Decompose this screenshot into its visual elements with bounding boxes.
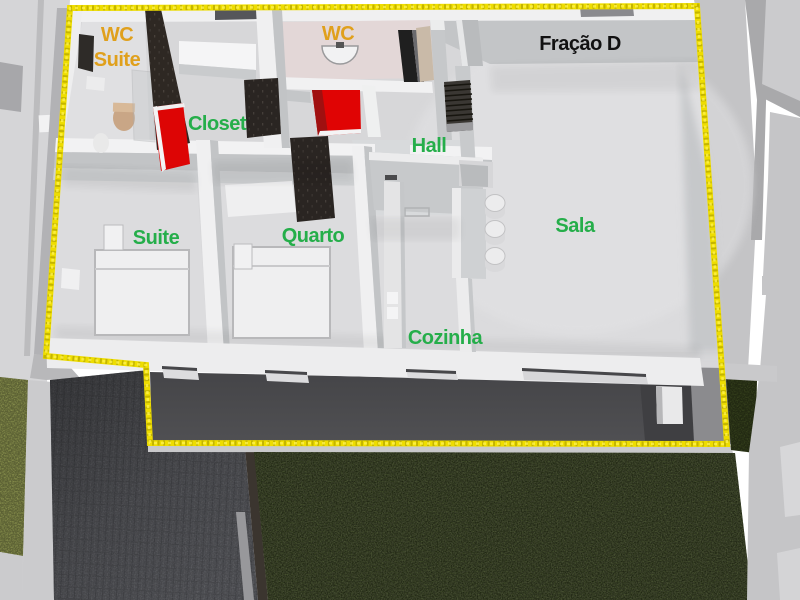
svg-text:Closet: Closet <box>188 113 247 135</box>
svg-text:WC: WC <box>101 24 133 46</box>
svg-text:Suite: Suite <box>94 49 141 71</box>
svg-text:Fração D: Fração D <box>539 33 621 55</box>
svg-text:Quarto: Quarto <box>282 225 345 247</box>
svg-text:WC: WC <box>322 23 354 45</box>
svg-text:Hall: Hall <box>412 135 447 157</box>
svg-text:Cozinha: Cozinha <box>408 327 484 349</box>
svg-text:Suite: Suite <box>133 227 180 249</box>
svg-text:Sala: Sala <box>555 215 596 237</box>
